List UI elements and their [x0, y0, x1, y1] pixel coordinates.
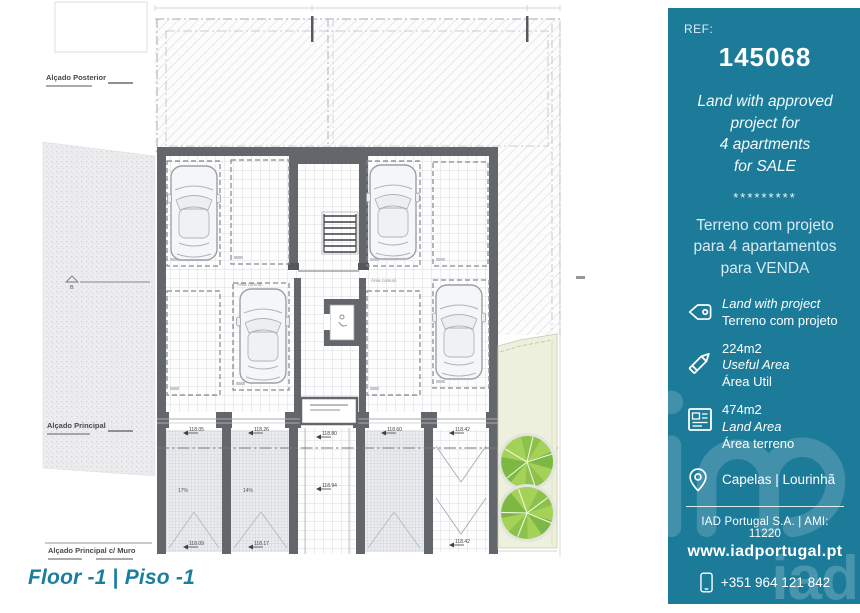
- tag-icon: [684, 296, 722, 327]
- car-top-view: [168, 166, 221, 260]
- headline-en: Land with approved project for 4 apartme…: [684, 91, 846, 178]
- svg-text:118.42: 118.42: [455, 539, 470, 545]
- car-top-view: [237, 289, 290, 383]
- cropped-elevation-frame: [55, 2, 147, 52]
- floor-title-separator: |: [107, 566, 125, 589]
- floor-title-pt: Piso -1: [125, 566, 195, 589]
- label-alcado-principal-muro: Alçado Principal c/ Muro: [48, 546, 136, 555]
- stairs: [324, 216, 356, 252]
- headline-pt: Terreno com projeto para 4 apartamentos …: [684, 215, 846, 280]
- scale-mark: [576, 276, 585, 279]
- floor-title: Floor -1|Piso -1: [28, 566, 195, 590]
- svg-text:118.60: 118.60: [387, 427, 402, 433]
- dimension-line: [155, 5, 560, 11]
- property-info-panel: REF: 145068 Land with approved project f…: [668, 8, 860, 604]
- slope-label: 14%: [243, 488, 254, 494]
- svg-text:B: B: [70, 285, 74, 291]
- feature-project: Land with project Terreno com projeto: [684, 296, 846, 330]
- svg-text:118.05: 118.05: [189, 427, 204, 433]
- mobile-phone-icon: [700, 572, 713, 593]
- svg-text:118.26: 118.26: [254, 427, 269, 433]
- label-alcado-posterior: Alçado Posterior: [46, 73, 106, 82]
- floor-title-en: Floor -1: [28, 566, 107, 589]
- svg-text:118.09: 118.09: [189, 541, 204, 547]
- car-top-view: [367, 165, 420, 259]
- elevator: [324, 299, 360, 346]
- label-alcado-principal: Alçado Principal: [47, 421, 106, 430]
- car-top-view: [433, 285, 486, 379]
- common-area-label: Área comum: [371, 277, 397, 283]
- tree: [498, 433, 556, 491]
- entrance-stair-bay: [298, 428, 356, 554]
- garden-strip: [486, 334, 568, 554]
- iad-watermark-glyph: [668, 362, 860, 552]
- slope-label: 17%: [178, 488, 189, 494]
- dimension-tick: [311, 16, 314, 42]
- phone-row: +351 964 121 842: [684, 572, 846, 593]
- phone-number: +351 964 121 842: [721, 575, 830, 590]
- svg-text:118.17: 118.17: [254, 541, 269, 547]
- ref-label: REF:: [684, 22, 846, 36]
- svg-text:118.42: 118.42: [455, 427, 470, 433]
- ref-number: 145068: [684, 42, 846, 73]
- floor-plan: Alçado Posterior Alçado Principal Alçado…: [0, 0, 668, 613]
- svg-text:118.80: 118.80: [322, 431, 337, 437]
- svg-text:118.94: 118.94: [322, 483, 337, 489]
- dimension-tick: [526, 16, 529, 42]
- stars-separator: *********: [684, 190, 846, 205]
- common-area-label: Área comum: [237, 281, 263, 287]
